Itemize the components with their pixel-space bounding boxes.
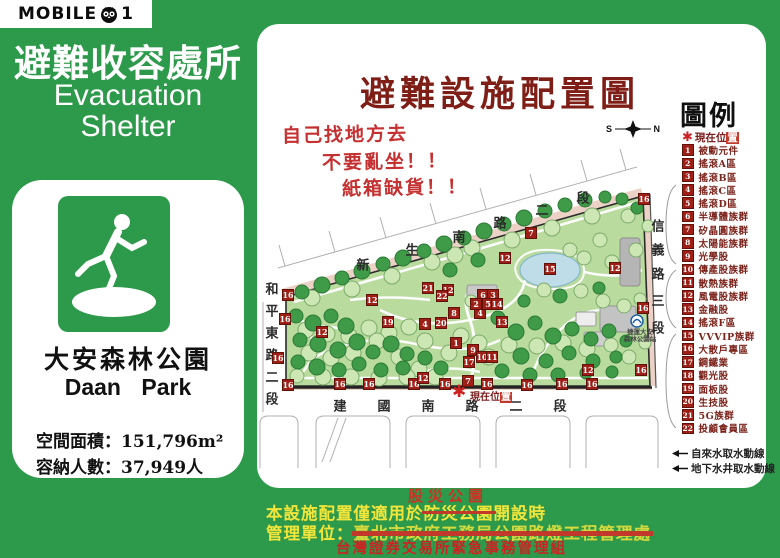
park-name-zh: 大安森林公園 [12, 340, 244, 376]
legend-item-label: 矽晶圓族群 [699, 223, 749, 237]
legend-item-label: 被動元件 [699, 143, 739, 157]
legend-item-number: 13 [682, 303, 694, 315]
legend-item-label: 搖滾B區 [699, 170, 738, 184]
current-location-star-icon: ✱ [452, 382, 466, 401]
legend-item-22: 22投顧會員區 [682, 422, 749, 434]
legend-item-number: 19 [682, 383, 694, 395]
legend-current-text-boxed: 置 [726, 132, 739, 144]
legend-item-number: 10 [682, 264, 694, 276]
legend-item-label: VVVIP族群 [699, 329, 755, 343]
evacuation-icon-square [58, 196, 170, 332]
sidebar-title-en: Evacuation Shelter [0, 80, 256, 142]
legend-item-4: 4搖滾C區 [682, 184, 737, 196]
legend-item-label: 面板股 [699, 382, 729, 396]
pond [520, 253, 580, 287]
legend-item-label: 生技股 [699, 395, 729, 409]
legend-item-label: 5G族群 [699, 408, 735, 422]
legend-water-line-1: 自來水取水動線 [672, 446, 765, 461]
mobile01-logo: MOBILE 1 [0, 0, 152, 28]
legend-item-label: 搖滾F區 [699, 315, 736, 329]
legend-item-number: 16 [682, 343, 694, 355]
legend-item-number: 2 [682, 158, 694, 170]
legend-item-16: 16大散戶專區 [682, 343, 749, 355]
sidebar-title-en-line2: Shelter [0, 111, 256, 142]
legend-item-number: 15 [682, 330, 694, 342]
mrt-station-icon [631, 315, 643, 327]
footer-replacement-agency: 台灣證券交易所緊急事務管理組 [336, 537, 567, 558]
legend-title: 圖例 [680, 94, 738, 133]
legend-item-number: 14 [682, 317, 694, 329]
legend-item-label: 散熱族群 [699, 276, 739, 290]
legend-item-number: 7 [682, 224, 694, 236]
park-name-en: Daan Park [12, 374, 244, 401]
legend-item-number: 20 [682, 396, 694, 408]
legend-item-15: 15VVVIP族群 [682, 330, 755, 342]
legend-item-label: 風電股族群 [699, 289, 749, 303]
logo-text-left: MOBILE [18, 4, 97, 24]
legend-item-label: 光學股 [699, 249, 729, 263]
stat-area: 空間面積：151,796m² [36, 427, 236, 452]
legend-item-number: 5 [682, 197, 694, 209]
legend-item-number: 22 [682, 423, 694, 435]
current-location-text-boxed: 置 [500, 392, 512, 403]
legend-item-number: 17 [682, 356, 694, 368]
legend-item-12: 12風電股族群 [682, 290, 749, 302]
legend-item-number: 3 [682, 171, 694, 183]
legend-item-number: 6 [682, 211, 694, 223]
current-location-marker: ✱ [452, 382, 466, 402]
legend-item-label: 太陽能族群 [699, 236, 749, 250]
legend-item-label: 搖滾D區 [699, 196, 738, 210]
sidebar-title-en-line1: Evacuation [0, 80, 256, 111]
legend-item-1: 1被動元件 [682, 144, 739, 156]
running-person-icon [58, 196, 170, 332]
legend-item-number: 1 [682, 144, 694, 156]
legend-item-19: 19面板股 [682, 383, 729, 395]
legend-item-2: 2搖滾A區 [682, 157, 736, 169]
legend-item-number: 18 [682, 370, 694, 382]
legend-item-label: 大散戶專區 [699, 342, 749, 356]
current-location-label: 現在位置 [470, 388, 512, 403]
legend-current-text: 現在位 [695, 132, 727, 144]
legend-item-number: 11 [682, 277, 694, 289]
legend-item-5: 5搖滾D區 [682, 197, 737, 209]
legend-item-label: 傳產股族群 [699, 262, 749, 276]
street-curbs-bottom [260, 416, 658, 468]
logo-text-right: 1 [121, 4, 134, 24]
arrow-left-icon [672, 464, 688, 473]
legend-item-label: 金融股 [699, 302, 729, 316]
current-location-text: 現在位 [470, 392, 500, 403]
legend-item-number: 12 [682, 290, 694, 302]
owl-icon [99, 4, 119, 24]
arrow-left-icon [672, 449, 688, 458]
legend-group-brackets [664, 180, 678, 440]
legend-item-9: 9光學股 [682, 250, 729, 262]
legend-item-20: 20生技股 [682, 396, 729, 408]
legend-item-21: 215G族群 [682, 409, 734, 421]
legend-item-label: 鋼鐵業 [699, 355, 729, 369]
legend-item-3: 3搖滾B區 [682, 171, 737, 183]
legend-star-icon: ✱ [682, 129, 693, 145]
legend-item-label: 投顧會員區 [699, 421, 749, 435]
legend-item-11: 11散熱族群 [682, 277, 739, 289]
legend-item-label: 觀光股 [699, 368, 729, 382]
legend-item-6: 6半導體族群 [682, 210, 749, 222]
legend-item-number: 4 [682, 184, 694, 196]
legend-item-number: 9 [682, 250, 694, 262]
legend-item-label: 半導體族群 [699, 209, 749, 223]
legend-item-17: 17鋼鐵業 [682, 356, 729, 368]
legend-item-18: 18觀光股 [682, 369, 729, 381]
legend-item-14: 14搖滾F區 [682, 316, 736, 328]
legend-item-10: 10傳產股族群 [682, 263, 749, 275]
legend-item-number: 8 [682, 237, 694, 249]
legend-item-13: 13金融股 [682, 303, 729, 315]
stat-capacity: 容納人數：37,949人 [36, 453, 236, 478]
legend-item-label: 搖滾A區 [699, 156, 737, 170]
legend-water-line-2: 地下水井取水動線 [672, 461, 775, 476]
legend-item-number: 21 [682, 409, 694, 421]
legend-item-8: 8太陽能族群 [682, 237, 749, 249]
legend-item-label: 搖滾C區 [699, 183, 737, 197]
mrt-station-label: 捷運大安 森林公園站 [620, 329, 660, 343]
legend-item-7: 7矽晶圓族群 [682, 224, 749, 236]
